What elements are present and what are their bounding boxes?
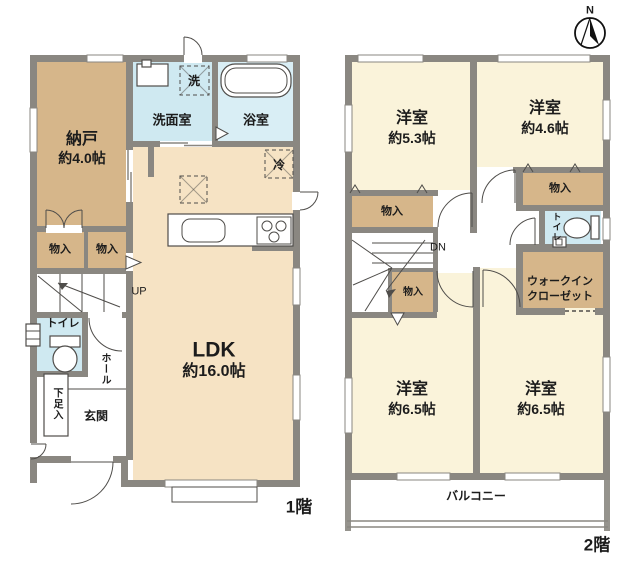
- window-53-left: [345, 105, 352, 152]
- label-senmenshitsu: 洗面室: [152, 114, 191, 127]
- label-nando-name: 納戸: [66, 132, 98, 148]
- label-washer: 洗: [188, 75, 200, 87]
- room-ldk: [133, 147, 293, 480]
- toilet-bowl-2f: [564, 218, 590, 238]
- compass-needle-icon: [590, 18, 599, 45]
- label-hall: ホール: [99, 353, 109, 386]
- label-genkan: 玄関: [84, 410, 108, 422]
- toilet-bowl-1f: [53, 346, 77, 372]
- label-room53-size: 約5.3帖: [388, 131, 435, 145]
- window-bath-top: [247, 55, 287, 62]
- label-room65l-size: 約6.5帖: [388, 402, 435, 416]
- label-fridge: 冷: [273, 159, 285, 171]
- label-nando-size: 約4.0帖: [58, 151, 105, 165]
- window-46-right: [603, 100, 610, 140]
- label-floor2: 2階: [584, 537, 610, 554]
- label-toilet-2f: トイレ: [552, 212, 561, 242]
- window-46-top: [498, 55, 590, 62]
- terrace-step: [172, 487, 257, 502]
- label-wic-line2: クローゼット: [527, 292, 593, 303]
- label-shoe-cabinet: 下足入: [51, 388, 61, 421]
- window-65l-balcony: [397, 473, 450, 480]
- window-65l-left: [345, 378, 352, 433]
- compass: [575, 18, 605, 48]
- label-closet-1f-right: 物入: [96, 245, 118, 256]
- label-room65r-name: 洋室: [525, 382, 557, 398]
- floor-plan: 納戸 約4.0帖 洗面室 浴室 洗 冷 LDK 約16.0帖 UP 物入 物入 …: [0, 0, 640, 563]
- label-compass-n: N: [586, 6, 594, 17]
- window-65r-right: [603, 357, 610, 412]
- window-nando-left: [30, 108, 37, 152]
- label-balcony: バルコニー: [446, 490, 506, 502]
- label-closet-46: 物入: [549, 184, 571, 195]
- label-ldk-name: LDK: [192, 340, 235, 361]
- balcony-structure: [345, 480, 610, 531]
- window-toilet-right: [603, 218, 610, 240]
- window-ldk-right-lower: [293, 375, 300, 420]
- label-closet-1f-left: 物入: [49, 245, 71, 256]
- label-room46-size: 約4.6帖: [521, 121, 568, 135]
- label-room53-name: 洋室: [396, 111, 428, 127]
- label-floor1: 1階: [286, 499, 312, 516]
- label-ldk-size: 約16.0帖: [182, 364, 245, 380]
- label-room65r-size: 約6.5帖: [517, 402, 564, 416]
- label-wic-line1: ウォークイン: [527, 277, 593, 288]
- window-65r-balcony: [505, 473, 560, 480]
- label-toilet-1f: トイレ: [47, 319, 80, 330]
- window-ldk-bottom: [165, 480, 257, 487]
- toilet-tank-1f: [50, 336, 80, 347]
- floor1-stairs: [38, 274, 120, 312]
- label-up: UP: [131, 287, 146, 298]
- label-yokushitsu: 浴室: [243, 114, 269, 127]
- label-room46-name: 洋室: [529, 101, 561, 117]
- window-nando-top: [87, 55, 123, 62]
- toilet-tank-2f: [591, 216, 599, 239]
- toilet-niche: [26, 324, 40, 346]
- label-room65l-name: 洋室: [396, 382, 428, 398]
- label-closet-stairs: 物入: [403, 288, 423, 298]
- window-ldk-right-upper: [293, 268, 300, 305]
- compass-needle-left: [581, 18, 590, 45]
- window-53-top: [358, 55, 423, 62]
- label-closet-53: 物入: [381, 207, 403, 218]
- label-dn: DN: [430, 243, 446, 254]
